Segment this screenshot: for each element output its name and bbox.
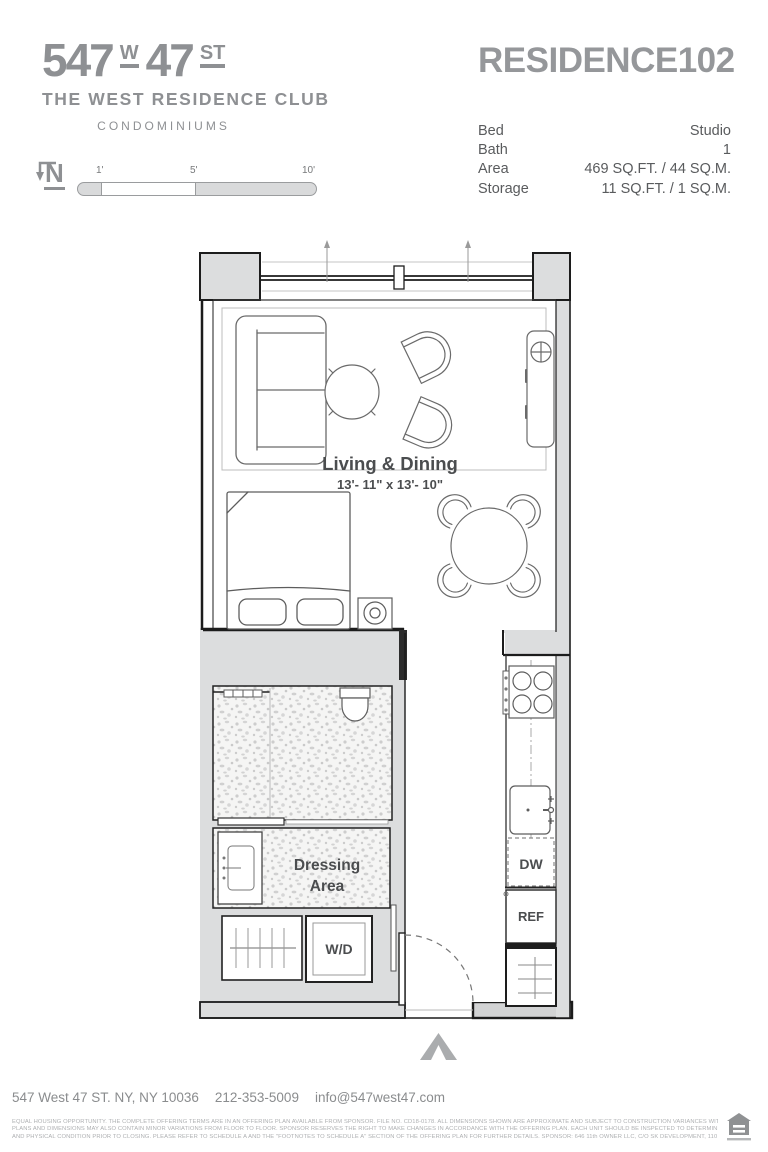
- vanity-sink: [218, 832, 262, 904]
- storage-closet: [506, 948, 556, 1006]
- pillow: [239, 599, 286, 625]
- floorplan-page: 547 W 47 ST THE WEST RESIDENCE CLUB COND…: [0, 0, 768, 1152]
- disclaimer-line-3: AND PHYSICAL CONDITION PRIOR TO CLOSING.…: [12, 1134, 718, 1141]
- lounge-chair-1: [401, 324, 458, 383]
- console-unit: [526, 331, 554, 447]
- dining-table: [451, 508, 527, 584]
- dressing-area: Dressing Area: [213, 828, 390, 908]
- window-mullion: [394, 266, 404, 289]
- pillow: [297, 599, 343, 625]
- lounge-chair-2: [403, 397, 459, 455]
- window-wall: [213, 240, 556, 300]
- footer-email[interactable]: info@547west47.com: [315, 1090, 445, 1105]
- footer-phone[interactable]: 212-353-5009: [215, 1090, 299, 1105]
- equal-housing-icon: [727, 1113, 751, 1143]
- dishwasher-label: DW: [519, 856, 543, 872]
- bed: [227, 492, 350, 629]
- refrigerator-label: REF: [518, 909, 544, 924]
- disclaimer-line-1: EQUAL HOUSING OPPORTUNITY. THE COMPLETE …: [12, 1119, 718, 1126]
- washer-dryer-label: W/D: [325, 941, 352, 957]
- living-dining-room: Living & Dining 13'- 11" x 13'- 10": [222, 308, 554, 629]
- dressing-area-label-line2: Area: [310, 878, 345, 895]
- shower-fixture: [224, 690, 262, 697]
- kitchen: DW REF: [503, 655, 556, 1006]
- entry-arrow: [420, 1033, 457, 1060]
- footer-address: 547 West 47 ST. NY, NY 10036: [12, 1090, 199, 1105]
- sofa: [236, 316, 326, 464]
- living-dining-dimensions: 13'- 11" x 13'- 10": [337, 477, 443, 492]
- dining-set: [431, 488, 548, 605]
- bathroom: [213, 686, 392, 825]
- refrigerator: REF: [504, 890, 556, 943]
- closet-laundry: W/D: [222, 916, 372, 982]
- legal-disclaimer: EQUAL HOUSING OPPORTUNITY. THE COMPLETE …: [12, 1119, 718, 1141]
- cooktop: [503, 666, 554, 718]
- closet: [222, 916, 302, 980]
- dressing-area-label-line1: Dressing: [294, 857, 360, 874]
- floor-plan: Living & Dining 13'- 11" x 13'- 10": [0, 0, 768, 1152]
- contact-line: 547 West 47 ST. NY, NY 10036 212-353-500…: [12, 1090, 445, 1105]
- disclaimer-line-2: PLANS AND DIMENSIONS MAY ALSO CONTAIN MI…: [12, 1126, 718, 1133]
- kitchen-sink: [510, 786, 554, 834]
- cocktail-table: [325, 365, 379, 419]
- dishwasher: DW: [508, 838, 554, 886]
- living-dining-label: Living & Dining: [322, 453, 458, 474]
- nightstand: [358, 598, 392, 629]
